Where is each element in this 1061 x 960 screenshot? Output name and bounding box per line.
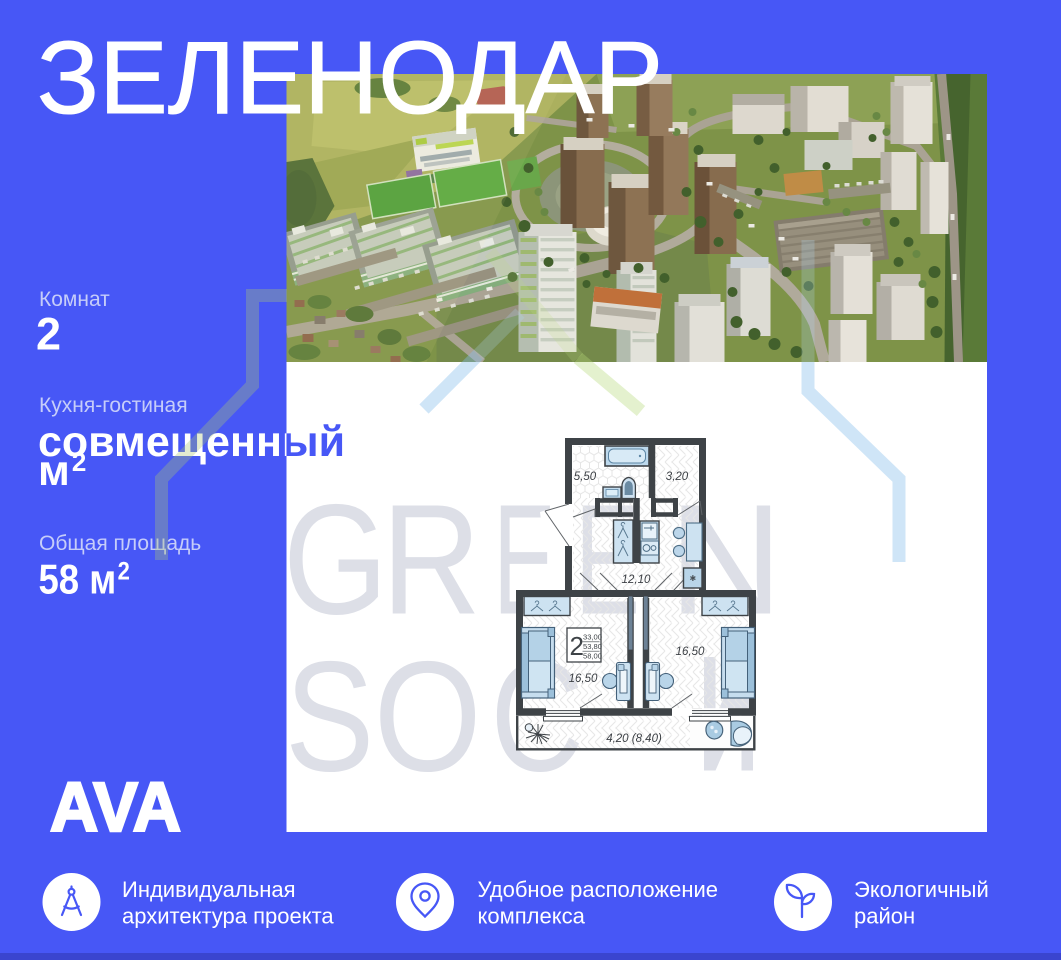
svg-text:53,80: 53,80: [583, 642, 602, 651]
svg-text:район: район: [854, 904, 915, 929]
svg-text:Кухня-гостиная: Кухня-гостиная: [39, 394, 188, 417]
svg-text:G: G: [283, 472, 388, 648]
svg-text:комплекса: комплекса: [478, 904, 586, 929]
svg-text:Индивидуальная: Индивидуальная: [122, 877, 296, 902]
svg-text:3,20: 3,20: [666, 471, 689, 483]
svg-text:Экологичный: Экологичный: [854, 877, 989, 902]
svg-text:O: O: [374, 630, 482, 805]
svg-text:2: 2: [36, 309, 61, 360]
svg-text:Удобное расположение: Удобное расположение: [478, 877, 719, 902]
svg-text:5,50: 5,50: [574, 471, 597, 483]
svg-text:ЗЕЛЕНОДАР: ЗЕЛЕНОДАР: [37, 20, 663, 135]
svg-text:16,50: 16,50: [569, 673, 598, 685]
svg-text:R: R: [381, 472, 481, 647]
svg-text:12,10: 12,10: [622, 574, 651, 586]
svg-text:4,20 (8,40): 4,20 (8,40): [606, 733, 662, 745]
svg-text:33,00: 33,00: [583, 633, 602, 642]
svg-text:16,50: 16,50: [676, 646, 705, 658]
svg-text:2: 2: [570, 631, 584, 661]
svg-text:S: S: [285, 629, 374, 804]
svg-text:58 м2: 58 м2: [39, 557, 130, 603]
svg-text:архитектура проекта: архитектура проекта: [122, 904, 334, 929]
svg-text:AVA: AVA: [50, 768, 181, 846]
svg-text:Общая площадь: Общая площадь: [39, 532, 201, 555]
svg-text:58,00: 58,00: [583, 652, 602, 661]
svg-text:✱: ✱: [690, 574, 697, 583]
